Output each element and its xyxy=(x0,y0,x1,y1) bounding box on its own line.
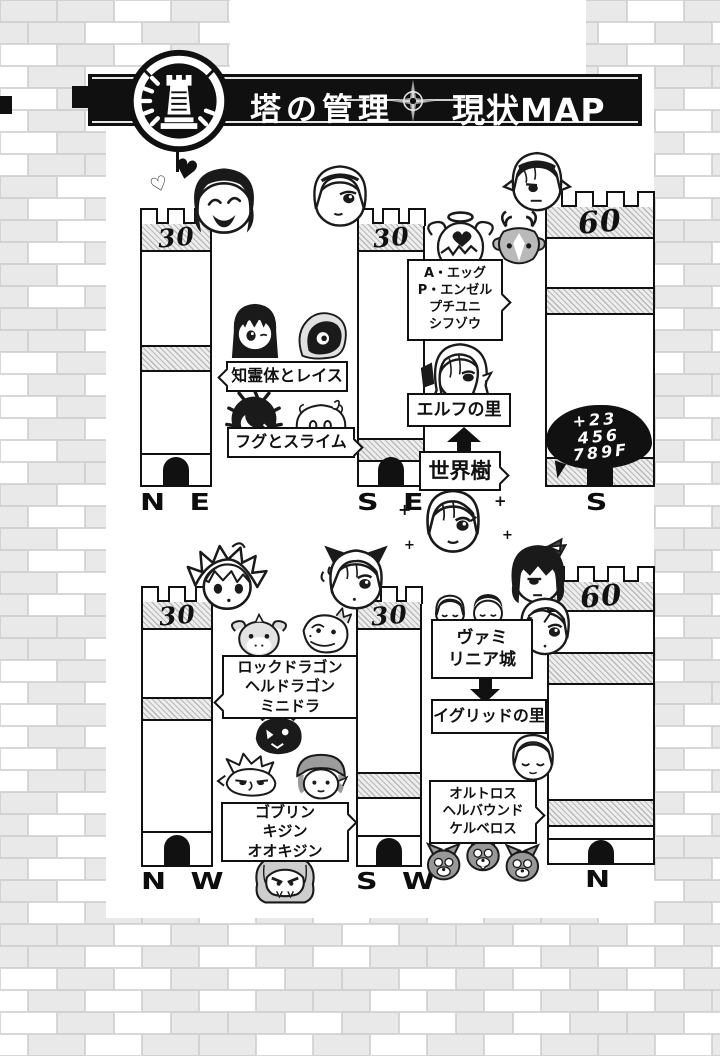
brick xyxy=(655,594,712,616)
tower-sw: 30 xyxy=(356,600,422,867)
brick xyxy=(342,1012,399,1034)
direction-label-s: S xyxy=(545,489,655,516)
tower-door xyxy=(588,840,614,863)
brick xyxy=(0,462,28,484)
direction-label-sw: S W xyxy=(356,868,422,895)
brick xyxy=(484,990,541,1012)
brick xyxy=(285,968,342,990)
brick xyxy=(655,814,712,836)
brick xyxy=(28,550,85,572)
brick xyxy=(0,946,28,968)
bubble-text: ヴァミ xyxy=(433,627,531,649)
brick xyxy=(114,1012,171,1034)
tower-nw: 30 xyxy=(141,600,213,867)
brick xyxy=(712,110,720,132)
brick xyxy=(0,132,57,154)
sleeping-chibi xyxy=(500,730,566,784)
brick xyxy=(655,946,712,968)
brick xyxy=(0,726,28,748)
brick xyxy=(570,924,627,946)
brick xyxy=(684,792,720,814)
brick xyxy=(684,572,720,594)
brick xyxy=(0,352,57,374)
tower-base-line xyxy=(142,453,210,456)
brick xyxy=(171,968,228,990)
brick xyxy=(712,858,720,880)
sparkle-icon: + xyxy=(398,500,411,519)
brick xyxy=(0,198,28,220)
brick xyxy=(0,572,57,594)
brick xyxy=(712,198,720,220)
brick xyxy=(370,946,427,968)
brick xyxy=(0,242,28,264)
brick xyxy=(712,1034,720,1056)
brick xyxy=(0,286,28,308)
brick xyxy=(570,968,627,990)
brick xyxy=(0,550,28,572)
brick xyxy=(0,770,28,792)
bubble-text: ケルベロス xyxy=(431,821,535,839)
brick xyxy=(0,154,28,176)
tower-section-band xyxy=(549,799,653,827)
brick xyxy=(684,0,720,22)
brick xyxy=(655,110,712,132)
brick xyxy=(0,396,57,418)
brick xyxy=(684,704,720,726)
brick xyxy=(0,176,57,198)
brick xyxy=(427,1034,484,1056)
direction-label-nw: N W xyxy=(141,868,213,895)
brick xyxy=(0,924,57,946)
tower-section-band xyxy=(142,345,210,372)
brick xyxy=(684,880,720,902)
brick xyxy=(712,374,720,396)
brick xyxy=(228,924,285,946)
bubble-text: シフゾウ xyxy=(409,317,501,334)
bubble-text: オオキジン xyxy=(223,842,347,862)
blonde-hairband-chibi xyxy=(300,158,380,234)
bubble-text: キジン xyxy=(223,822,347,842)
brick xyxy=(28,110,85,132)
brick xyxy=(171,924,228,946)
brick xyxy=(712,594,720,616)
bubble-text: エルフの里 xyxy=(409,399,509,421)
brick xyxy=(28,286,85,308)
brick xyxy=(598,990,655,1012)
brick xyxy=(0,0,57,22)
manga-map-page: 塔の管理 現状MAP 30 N E xyxy=(0,0,720,1027)
arrow-up xyxy=(447,427,481,453)
brick xyxy=(399,924,456,946)
brick xyxy=(598,22,655,44)
brick xyxy=(57,924,114,946)
tower-ne: 30 xyxy=(140,222,212,487)
brick xyxy=(114,924,171,946)
bubble-igrid-village: イグリッドの里 xyxy=(431,699,547,734)
tower-base-line xyxy=(143,831,211,834)
brick xyxy=(0,44,57,66)
brick xyxy=(228,1012,285,1034)
brick xyxy=(427,946,484,968)
brick xyxy=(0,814,28,836)
brick xyxy=(0,748,57,770)
brick xyxy=(28,770,85,792)
brick xyxy=(541,1034,598,1056)
bubble-goblins: ゴブリン キジン オオキジン xyxy=(221,802,349,862)
bubble-text: 世界樹 xyxy=(421,457,499,484)
pale-dragon xyxy=(290,602,358,662)
brick xyxy=(199,990,256,1012)
tower-door xyxy=(164,835,190,865)
tower-door xyxy=(378,457,404,485)
bubble-elf-village: エルフの里 xyxy=(407,393,511,427)
brick xyxy=(655,770,712,792)
brick xyxy=(0,858,28,880)
bubble-text: プチユニ xyxy=(409,300,501,317)
top-white-panel xyxy=(230,0,586,76)
brick xyxy=(684,528,720,550)
spiky-hair-chibi xyxy=(182,538,274,616)
wraith xyxy=(290,304,352,364)
brick xyxy=(684,968,720,990)
sparkle-icon: + xyxy=(494,492,507,510)
bubble-text: ミニドラ xyxy=(224,697,356,717)
brick xyxy=(712,506,720,528)
tower-section-band xyxy=(547,287,653,315)
brick xyxy=(285,1012,342,1034)
floor-count-blob: +23 456 789F xyxy=(546,405,652,469)
banner-left-accent xyxy=(0,96,12,114)
bubble-hellhounds: オルトロス ヘルバウンド ケルベロス xyxy=(429,780,537,844)
brick xyxy=(28,858,85,880)
brick xyxy=(0,66,28,88)
brick xyxy=(627,1012,684,1034)
brick xyxy=(712,946,720,968)
sparkle-icon: + xyxy=(404,538,415,553)
black-hair-girl-chibi xyxy=(222,296,288,362)
brick xyxy=(0,374,28,396)
brick xyxy=(456,924,513,946)
brick xyxy=(57,44,114,66)
tower-door xyxy=(376,838,402,865)
brick xyxy=(142,22,199,44)
brick xyxy=(684,836,720,858)
bubble-text: ゴブリン xyxy=(223,803,347,823)
brick xyxy=(28,638,85,660)
brick xyxy=(712,550,720,572)
brick xyxy=(0,418,28,440)
brick xyxy=(0,682,28,704)
sparkle-girl-chibi xyxy=(408,484,498,562)
bubble-text: A・エッグ xyxy=(409,266,501,283)
brick xyxy=(684,748,720,770)
brick xyxy=(484,946,541,968)
bubble-text: ヘルバウンド xyxy=(431,803,535,821)
brick xyxy=(0,594,28,616)
tower-section-band xyxy=(358,772,420,799)
brick xyxy=(684,660,720,682)
brick xyxy=(85,1034,142,1056)
brick xyxy=(712,990,720,1012)
brick xyxy=(655,242,712,264)
brick xyxy=(513,924,570,946)
brick xyxy=(655,462,712,484)
brick xyxy=(655,286,712,308)
brick xyxy=(627,44,684,66)
brick xyxy=(57,968,114,990)
brick xyxy=(199,946,256,968)
brick xyxy=(0,638,28,660)
brick xyxy=(655,638,712,660)
brick xyxy=(655,682,712,704)
brick xyxy=(28,462,85,484)
brick xyxy=(142,1034,199,1056)
brick xyxy=(28,22,85,44)
bubble-text: P・エンゼル xyxy=(409,283,501,300)
bubble-dragons: ロックドラゴン ヘルドラゴン ミニドラ xyxy=(222,655,358,719)
capped-goblin xyxy=(288,744,354,808)
brick xyxy=(28,154,85,176)
brick xyxy=(313,946,370,968)
brick xyxy=(655,374,712,396)
floor-number: 60 xyxy=(577,203,624,242)
brick xyxy=(142,946,199,968)
brick xyxy=(0,792,57,814)
brick xyxy=(456,968,513,990)
brick xyxy=(684,308,720,330)
tower-section-band xyxy=(143,697,211,721)
brick xyxy=(627,968,684,990)
brick xyxy=(28,682,85,704)
brick xyxy=(0,836,57,858)
brick xyxy=(684,44,720,66)
brick xyxy=(684,1012,720,1034)
brick xyxy=(513,1012,570,1034)
brick xyxy=(456,1012,513,1034)
brick xyxy=(0,990,28,1012)
brick xyxy=(427,990,484,1012)
tower-gear-emblem xyxy=(126,48,232,154)
brick xyxy=(0,968,57,990)
brick xyxy=(28,726,85,748)
brick xyxy=(655,726,712,748)
brick xyxy=(598,946,655,968)
brick xyxy=(484,1034,541,1056)
brick xyxy=(0,264,57,286)
tower-door xyxy=(163,457,189,485)
brick xyxy=(655,198,712,220)
brick xyxy=(712,66,720,88)
brick xyxy=(627,0,684,22)
brick xyxy=(142,990,199,1012)
brick xyxy=(399,1012,456,1034)
brick xyxy=(228,968,285,990)
brick xyxy=(313,1034,370,1056)
brick xyxy=(171,1012,228,1034)
brick xyxy=(28,946,85,968)
brick xyxy=(684,440,720,462)
brick xyxy=(57,0,114,22)
brick xyxy=(28,814,85,836)
brick xyxy=(28,198,85,220)
brick xyxy=(0,1012,57,1034)
bubble-text: 知霊体とレイス xyxy=(228,366,346,387)
compass-rose-icon xyxy=(390,78,436,124)
brick xyxy=(342,968,399,990)
brick xyxy=(655,858,712,880)
brick xyxy=(0,220,57,242)
brick xyxy=(0,902,28,924)
brick xyxy=(0,616,57,638)
brick xyxy=(627,924,684,946)
brick xyxy=(570,1012,627,1034)
brick xyxy=(513,968,570,990)
brick xyxy=(0,484,57,506)
brick xyxy=(85,946,142,968)
brick xyxy=(28,990,85,1012)
brick xyxy=(199,1034,256,1056)
brick xyxy=(712,682,720,704)
brick xyxy=(28,374,85,396)
brick xyxy=(370,990,427,1012)
brick xyxy=(712,418,720,440)
brick xyxy=(285,924,342,946)
banner-title-right: 現状MAP xyxy=(452,84,606,132)
brick xyxy=(57,1012,114,1034)
brick xyxy=(342,924,399,946)
brick xyxy=(28,418,85,440)
brick xyxy=(28,506,85,528)
tower-base-line xyxy=(358,835,420,838)
brick xyxy=(598,1034,655,1056)
brick xyxy=(684,484,720,506)
bubble-angel-group: A・エッグ P・エンゼル プチユニ シフゾウ xyxy=(407,259,503,341)
brick xyxy=(655,902,712,924)
brick xyxy=(0,330,28,352)
brick xyxy=(655,418,712,440)
brick xyxy=(0,880,57,902)
brick xyxy=(712,770,720,792)
brick xyxy=(712,462,720,484)
bubble-vamilinia: ヴァミ リニア城 xyxy=(431,619,533,679)
brick xyxy=(712,814,720,836)
brick xyxy=(712,330,720,352)
direction-label-ne: N E xyxy=(140,489,212,516)
bubble-text: リニア城 xyxy=(433,649,531,671)
brick xyxy=(28,242,85,264)
brick xyxy=(541,946,598,968)
bubble-fugu-slime: フグとスライム xyxy=(227,427,355,458)
brick xyxy=(370,1034,427,1056)
brick xyxy=(655,330,712,352)
brick xyxy=(712,286,720,308)
brick xyxy=(114,0,171,22)
brick xyxy=(0,528,57,550)
brick xyxy=(313,990,370,1012)
brick xyxy=(684,616,720,638)
brick xyxy=(28,1034,85,1056)
brick xyxy=(684,396,720,418)
brick xyxy=(712,22,720,44)
brick xyxy=(712,638,720,660)
brick xyxy=(28,594,85,616)
brick xyxy=(0,1034,28,1056)
brick xyxy=(256,946,313,968)
brick xyxy=(399,968,456,990)
brick xyxy=(28,330,85,352)
brick xyxy=(712,726,720,748)
banner-title-left: 塔の管理 xyxy=(250,84,394,129)
bubble-text: フグとスライム xyxy=(229,432,353,453)
brick xyxy=(655,1034,712,1056)
brick xyxy=(684,176,720,198)
brick xyxy=(655,550,712,572)
brick xyxy=(684,220,720,242)
brick xyxy=(0,660,57,682)
brick xyxy=(655,22,712,44)
brick xyxy=(684,264,720,286)
brick xyxy=(28,902,85,924)
brick xyxy=(655,990,712,1012)
bubble-world-tree: 世界樹 xyxy=(419,451,501,491)
brick xyxy=(114,968,171,990)
brick xyxy=(655,506,712,528)
brick xyxy=(684,132,720,154)
brick xyxy=(85,990,142,1012)
brick xyxy=(85,22,142,44)
brick xyxy=(0,22,28,44)
brick xyxy=(684,352,720,374)
brick xyxy=(256,990,313,1012)
brick xyxy=(655,66,712,88)
brick xyxy=(256,1034,313,1056)
brick xyxy=(0,506,28,528)
brick xyxy=(28,66,85,88)
bubble-text: ヘルドラゴン xyxy=(224,677,356,697)
brick xyxy=(684,924,720,946)
laughing-dark-hair-chibi xyxy=(180,160,268,240)
bubble-text: オルトロス xyxy=(431,786,535,804)
bubble-spirits: 知霊体とレイス xyxy=(226,361,348,392)
brick xyxy=(712,902,720,924)
brick xyxy=(684,88,720,110)
brick xyxy=(0,704,57,726)
brick xyxy=(0,440,57,462)
direction-label-n: N xyxy=(547,866,655,893)
brick xyxy=(655,154,712,176)
bubble-text: ロックドラゴン xyxy=(224,658,356,678)
brick xyxy=(171,0,228,22)
brick xyxy=(712,242,720,264)
bubble-text: イグリッドの里 xyxy=(433,706,545,727)
brick xyxy=(0,308,57,330)
brick xyxy=(712,154,720,176)
brick xyxy=(541,990,598,1012)
